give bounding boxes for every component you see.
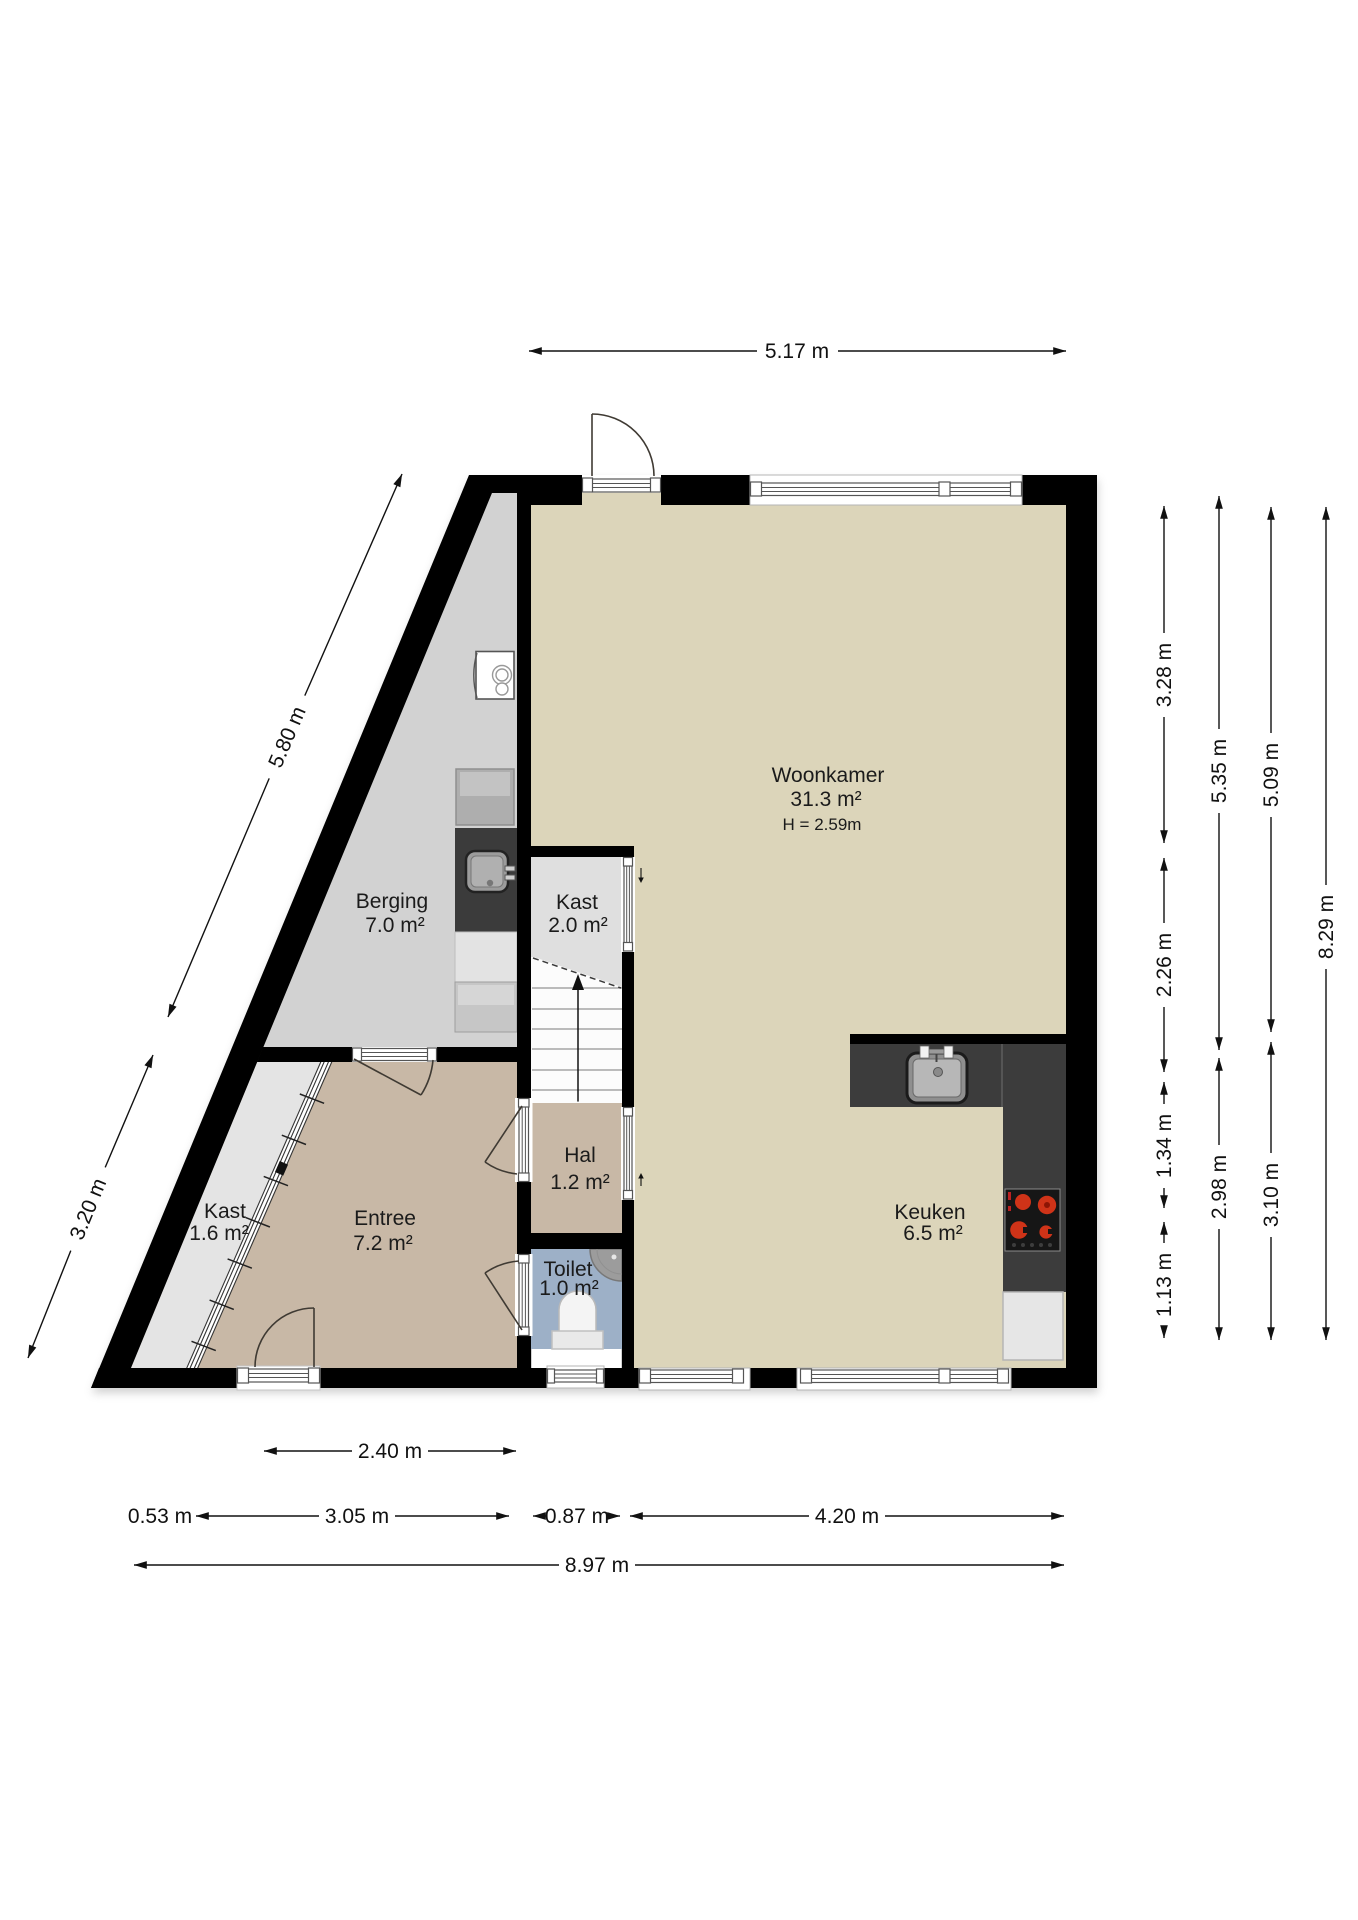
svg-text:Keuken: Keuken [894, 1201, 965, 1224]
svg-text:H = 2.59m: H = 2.59m [783, 815, 862, 834]
svg-text:2.0 m²: 2.0 m² [548, 914, 608, 937]
svg-text:3.28 m: 3.28 m [1153, 643, 1176, 707]
svg-text:Entree: Entree [354, 1207, 416, 1230]
svg-text:8.97 m: 8.97 m [565, 1554, 629, 1577]
svg-text:6.5 m²: 6.5 m² [903, 1222, 963, 1245]
svg-text:Kast: Kast [556, 891, 598, 914]
svg-text:Woonkamer: Woonkamer [772, 764, 885, 787]
svg-text:1.34 m: 1.34 m [1153, 1114, 1176, 1178]
svg-text:5.35 m: 5.35 m [1208, 739, 1231, 803]
svg-text:7.2 m²: 7.2 m² [353, 1232, 413, 1255]
svg-text:3.05 m: 3.05 m [325, 1505, 389, 1528]
svg-text:1.0 m²: 1.0 m² [539, 1277, 599, 1300]
svg-text:2.26 m: 2.26 m [1153, 933, 1176, 997]
svg-text:31.3 m²: 31.3 m² [790, 788, 861, 811]
svg-text:3.10 m: 3.10 m [1260, 1163, 1283, 1227]
svg-text:5.17 m: 5.17 m [765, 340, 829, 363]
svg-text:5.09 m: 5.09 m [1260, 743, 1283, 807]
svg-text:0.87 m: 0.87 m [545, 1505, 609, 1528]
svg-text:2.98 m: 2.98 m [1208, 1155, 1231, 1219]
svg-text:Berging: Berging [356, 890, 428, 913]
svg-text:1.13 m: 1.13 m [1153, 1253, 1176, 1317]
svg-text:7.0 m²: 7.0 m² [365, 914, 425, 937]
svg-text:1.2 m²: 1.2 m² [550, 1171, 610, 1194]
svg-text:8.29 m: 8.29 m [1315, 895, 1338, 959]
svg-text:4.20 m: 4.20 m [815, 1505, 879, 1528]
svg-text:0.53 m: 0.53 m [128, 1505, 192, 1528]
svg-text:Hal: Hal [564, 1144, 596, 1167]
svg-text:Kast: Kast [204, 1200, 246, 1223]
svg-text:2.40 m: 2.40 m [358, 1440, 422, 1463]
svg-text:1.6 m²: 1.6 m² [189, 1222, 249, 1245]
